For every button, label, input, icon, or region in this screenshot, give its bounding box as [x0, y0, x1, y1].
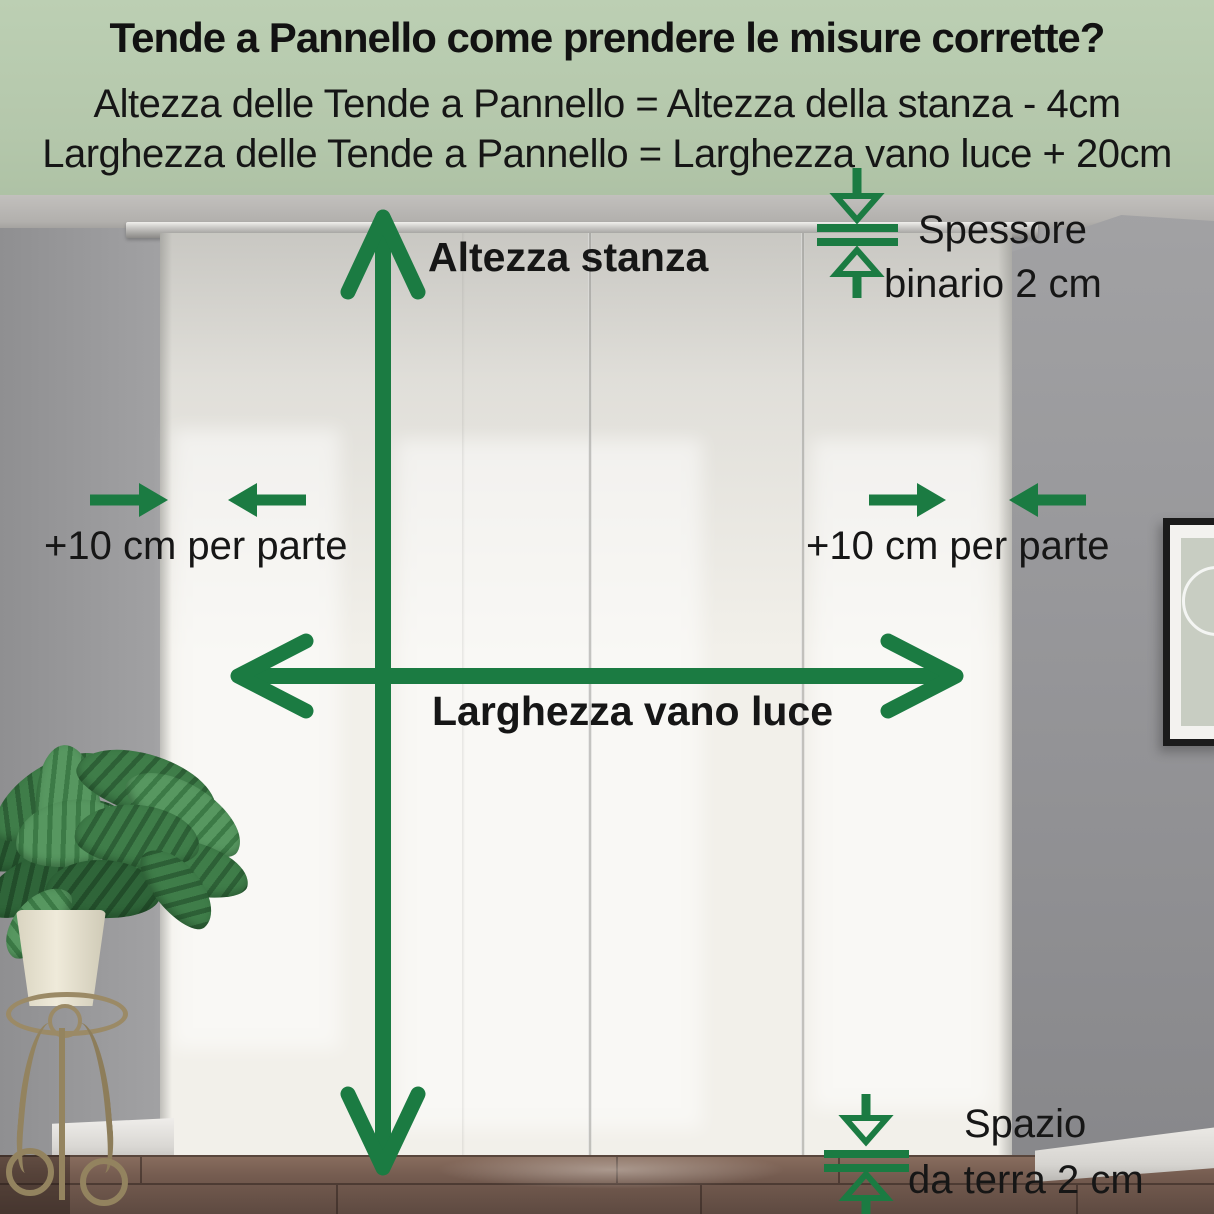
- side-margin-label-left: +10 cm per parte: [44, 524, 348, 569]
- infographic-canvas: Tende a Pannello come prendere le misure…: [0, 0, 1214, 1214]
- plant-stand-scroll-foot: [80, 1158, 128, 1206]
- frame-artwork: [1181, 538, 1214, 726]
- height-formula: Altezza delle Tende a Pannello = Altezza…: [0, 82, 1214, 127]
- floor-gap-label-line1: Spazio: [964, 1102, 1086, 1147]
- track-thickness-label-line2: binario 2 cm: [884, 262, 1102, 307]
- room-height-label: Altezza stanza: [428, 234, 708, 281]
- plant-stand-scroll-foot: [6, 1148, 54, 1196]
- grout-line: [700, 1185, 702, 1214]
- window-width-label: Larghezza vano luce: [432, 688, 833, 735]
- page-title: Tende a Pannello come prendere le misure…: [0, 14, 1214, 62]
- picture-frame: [1163, 518, 1214, 746]
- curtain-right-edge-shade: [998, 233, 1012, 1214]
- track-thickness-label-line1: Spessore: [918, 208, 1087, 253]
- plant-stand-leg: [59, 1028, 65, 1200]
- header-banner: Tende a Pannello come prendere le misure…: [0, 0, 1214, 195]
- floor-gap-label-line2: da terra 2 cm: [908, 1158, 1144, 1203]
- plant-stand-leg: [63, 1021, 116, 1176]
- potted-plant: [0, 740, 235, 1214]
- grout-line: [336, 1185, 338, 1214]
- grout-line: [838, 1157, 840, 1183]
- curtain-reflection: [396, 439, 702, 1129]
- floor-light-reflection: [436, 1157, 786, 1189]
- side-margin-label-right: +10 cm per parte: [806, 524, 1110, 569]
- width-formula: Larghezza delle Tende a Pannello = Largh…: [0, 132, 1214, 177]
